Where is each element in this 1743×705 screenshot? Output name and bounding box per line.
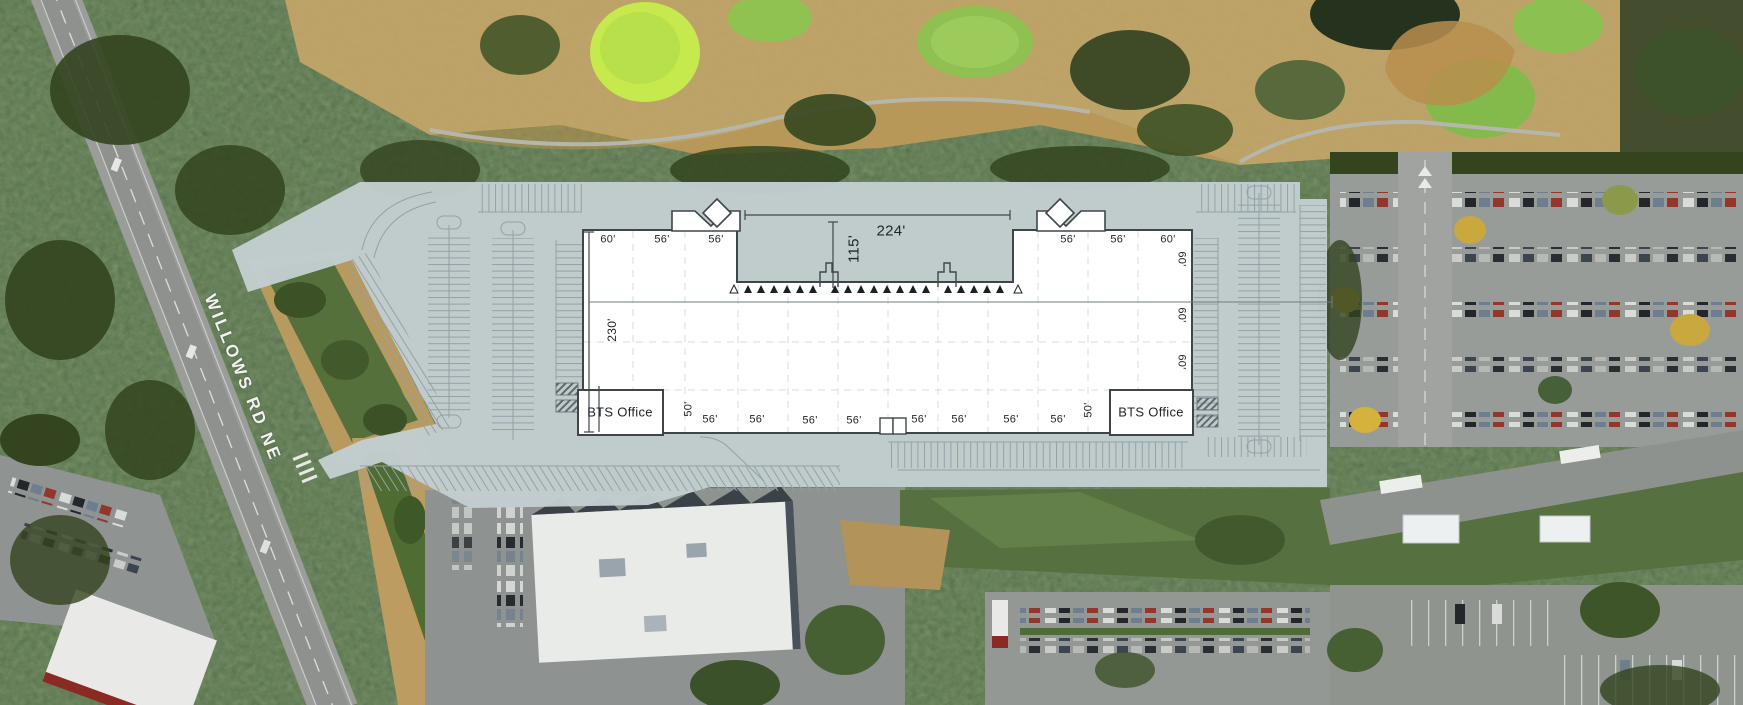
bottom-bay-label: 50'	[1084, 402, 1095, 417]
top-bay-label: 60'	[1160, 235, 1175, 246]
top-bay-label: 60'	[600, 235, 615, 246]
top-bay-label: 56'	[654, 235, 669, 246]
right-bay-label: 60'	[1176, 354, 1187, 369]
top-bay-label: 56'	[708, 235, 723, 246]
south-entry-vestibule	[880, 418, 906, 434]
right-bay-label: 60'	[1176, 307, 1187, 322]
truck-court-depth-label: 115'	[847, 235, 862, 263]
bottom-bay-label: 56'	[846, 416, 861, 427]
bottom-bay-label: 56'	[802, 416, 817, 427]
building-depth-label: 230'	[606, 318, 618, 342]
bts-office-right-label: BTS Office	[1118, 406, 1184, 419]
top-bay-label: 56'	[1110, 235, 1125, 246]
bottom-bay-label: 56'	[702, 415, 717, 426]
bottom-bay-label: 56'	[911, 415, 926, 426]
bts-office-left-label: BTS Office	[587, 406, 653, 419]
right-bay-label: 60'	[1176, 251, 1187, 266]
bottom-bay-label: 56'	[749, 415, 764, 426]
aerial-site-plan: WILLOWS RD NE 224' 115' 230' 60' 56' 56'…	[0, 0, 1743, 705]
bottom-bay-label: 56'	[1003, 415, 1018, 426]
site-plan-overlay	[0, 0, 1743, 705]
top-bay-label: 56'	[1060, 235, 1075, 246]
bottom-bay-label: 56'	[951, 415, 966, 426]
bottom-bay-label: 56'	[1050, 415, 1065, 426]
bottom-bay-label: 50'	[684, 401, 695, 416]
truck-court-width-label: 224'	[876, 224, 905, 239]
